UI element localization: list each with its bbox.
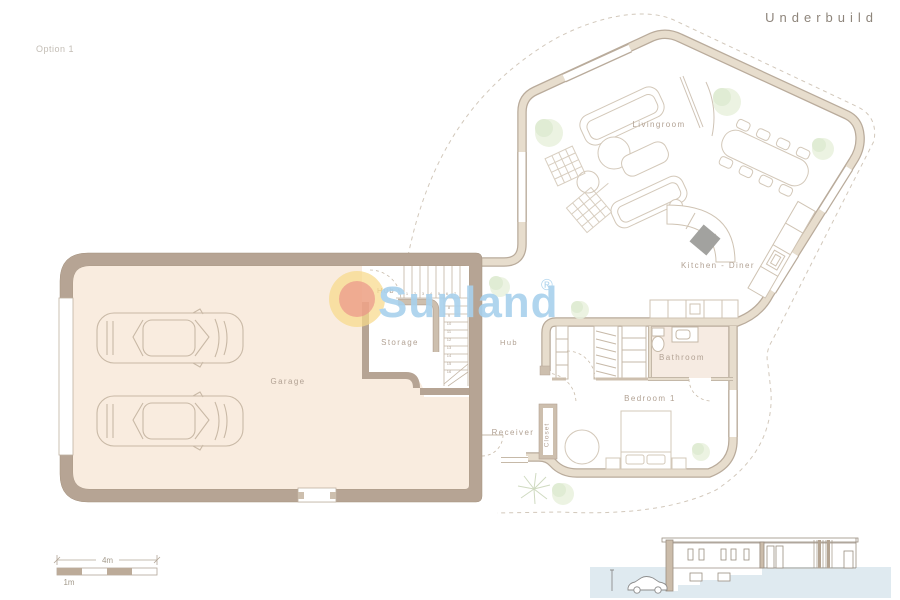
registered-mark-icon: ® [541,277,553,294]
bedroom-chair-icon [565,430,599,464]
elevation-door [767,546,774,568]
wardrobes [552,326,648,379]
option-label: Option 1 [36,44,74,54]
step-number: 14 [447,353,452,358]
hub-main-label: Hub [500,338,518,347]
garage-window [59,298,73,455]
receiver-entry [482,435,528,463]
nightstand-icon [606,458,620,469]
entry-door-arc [482,435,503,456]
upper-floor-plan [482,34,860,473]
page-title: Underbuild [765,10,878,25]
elevation-door [844,551,853,568]
bathroom-door-arc [689,379,711,401]
bedroom-furniture [546,373,686,469]
closet-label: Closet [544,423,551,447]
scale-minor-label: 1m [63,578,74,587]
livingroom-label: Livingroom [632,120,685,129]
dining-set [713,116,818,200]
section-pillar [666,540,673,591]
kitchen-diner-label: Kitchen - Diner [681,261,755,270]
storage-label: Storage [381,338,419,347]
kitchen-counter-row [650,300,738,318]
receiver-label: Receiver [492,428,535,437]
wardrobe-door-arc [567,351,595,379]
nightstand-icon [672,458,686,469]
step-number: 13 [447,345,452,350]
floorplan-page: 1 2 3 4 5 6 7 8 9 10 11 12 13 14 15 16 [0,0,900,600]
watermark: Sunland ® [329,271,559,327]
elevation-drawing [590,538,891,598]
floorplan-svg: 1 2 3 4 5 6 7 8 9 10 11 12 13 14 15 16 [0,0,900,600]
garage-label: Garage [270,377,305,386]
watermark-brand: Sunland [378,278,559,327]
bathroom-label: Bathroom [659,353,705,362]
plant-icon [535,119,563,147]
step-number: 16 [447,369,452,374]
toilet-icon [652,328,664,336]
scale-bar: 4m 1m [54,555,160,587]
plant-icon [692,443,710,461]
plant-icon [713,88,741,116]
elevation-door [776,546,783,568]
plant-icon [812,138,834,160]
step-number: 15 [447,361,452,366]
palm-icon [518,473,550,504]
bedroom-label: Bedroom 1 [624,394,676,403]
plant-icon [571,301,589,319]
shelf-unit-icon [622,326,646,378]
step-number: 12 [447,337,452,342]
scale-major-label: 4m [102,556,113,565]
kitchen-island-curved [667,205,735,262]
plant-icon [552,483,574,505]
